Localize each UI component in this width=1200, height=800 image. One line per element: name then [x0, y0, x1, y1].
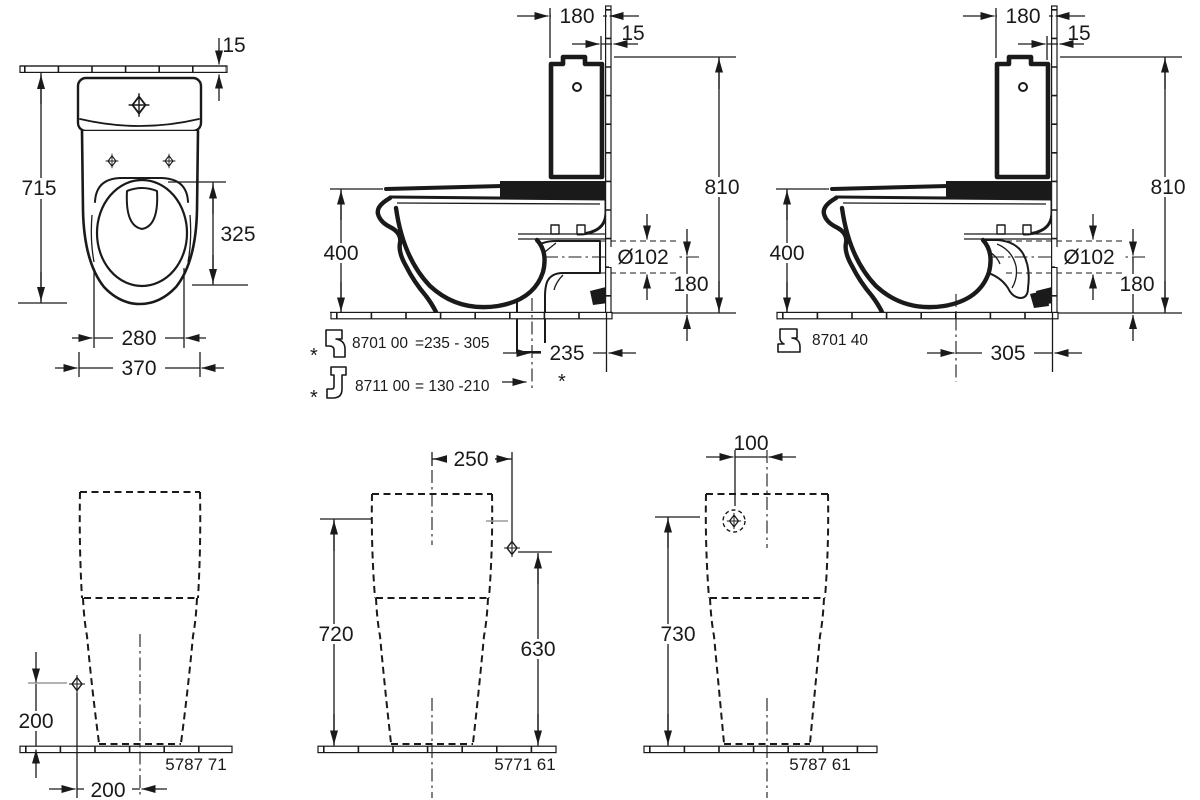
- accessory-2-range: = 130 -210: [415, 378, 490, 395]
- dim-label-outlet-diameter: Ø102: [617, 246, 668, 269]
- dim-label-flush-to-wall: 180: [1005, 5, 1040, 28]
- model-number: 5771 61: [494, 755, 555, 774]
- dim-label-tank-height: 730: [660, 623, 695, 646]
- toilet-side-profile: [824, 57, 1146, 312]
- wall-section-top: [20, 66, 227, 72]
- accessory-3-code: 8701 40: [812, 332, 868, 349]
- dim-label-supply-offset: 200: [90, 779, 125, 800]
- rear-view-right: 100 730 5787 61: [644, 432, 877, 798]
- supply-connection-icon: [69, 675, 85, 693]
- dim-label-tank-width: 370: [121, 357, 156, 380]
- outlet-note-marker: *: [558, 371, 566, 393]
- straight-adapter-icon: [327, 367, 346, 398]
- dim-label-rim-height: 400: [323, 242, 358, 265]
- dim-label-outlet-diameter: Ø102: [1063, 246, 1114, 269]
- dim-label-supply-height: 630: [520, 638, 555, 661]
- offset-adapter-icon: [326, 330, 345, 357]
- dim-label-height-total: 810: [1150, 176, 1185, 199]
- accessory-2-code: 8711 00: [355, 378, 410, 395]
- model-number: 5787 61: [789, 755, 850, 774]
- floor-section: [777, 312, 1058, 318]
- dim-label-outlet-height: 180: [1119, 273, 1154, 296]
- floor-section: [331, 312, 612, 318]
- rear-view-center: 250 720 630 5771 61: [312, 448, 562, 798]
- dim-label-tank-wall-gap: 15: [1067, 22, 1090, 45]
- accessory-note-3: 8701 40: [778, 329, 868, 352]
- dim-label-tank-wall-gap: 15: [621, 22, 644, 45]
- toilet-top-outline: [78, 78, 201, 304]
- floor-section: [644, 746, 877, 752]
- dim-label-supply-offset: 100: [733, 432, 768, 455]
- model-number: 5787 71: [165, 755, 226, 774]
- dim-label-depth-total: 715: [21, 177, 56, 200]
- dim-label-wall-thickness: 15: [222, 34, 245, 57]
- dim-label-outlet-to-wall: 305: [990, 342, 1025, 365]
- technical-drawing-canvas: 15 715 325 280 370: [0, 0, 1200, 800]
- rear-view-arrows: [668, 457, 796, 745]
- dim-label-height-total: 810: [704, 176, 739, 199]
- floor-section: [20, 746, 232, 752]
- accessory-1-code: 8701 00: [352, 335, 408, 352]
- accessory-2-marker: *: [310, 387, 318, 409]
- supply-connection-icon: [504, 539, 520, 557]
- rear-view-left: 200 200 5787 71: [12, 492, 232, 800]
- accessory-1-range: =235 - 305: [415, 335, 490, 352]
- top-view: 15 715 325 280 370: [15, 34, 256, 380]
- side-view-bottom-outlet: 180 15 810 400 Ø102 180 235 * * 8701 00 …: [310, 5, 748, 409]
- dim-label-rim-height: 400: [769, 242, 804, 265]
- dim-label-seat-opening: 325: [220, 223, 255, 246]
- side-view-rear-outlet: 180 15 810 400 Ø102 180 305 8701 40: [761, 5, 1194, 382]
- toilet-side-profile: [378, 57, 700, 312]
- accessory-note-1: * 8701 00 =235 - 305: [310, 330, 490, 367]
- rear-outlet-adapter-icon: [778, 329, 800, 352]
- accessory-1-marker: *: [310, 345, 318, 367]
- dim-label-outlet-height: 180: [673, 273, 708, 296]
- accessory-note-2: * 8711 00 = 130 -210: [310, 367, 527, 409]
- dim-label-bowl-width: 280: [121, 327, 156, 350]
- rear-view-arrows: [334, 459, 538, 745]
- floor-section: [318, 746, 556, 752]
- dim-label-supply-height: 200: [18, 710, 53, 733]
- dim-label-tank-height: 720: [318, 623, 353, 646]
- dim-label-supply-offset: 250: [453, 448, 488, 471]
- supply-connection-icon: [727, 513, 741, 529]
- dim-label-flush-to-wall: 180: [559, 5, 594, 28]
- dim-label-outlet-to-wall: 235: [549, 342, 584, 365]
